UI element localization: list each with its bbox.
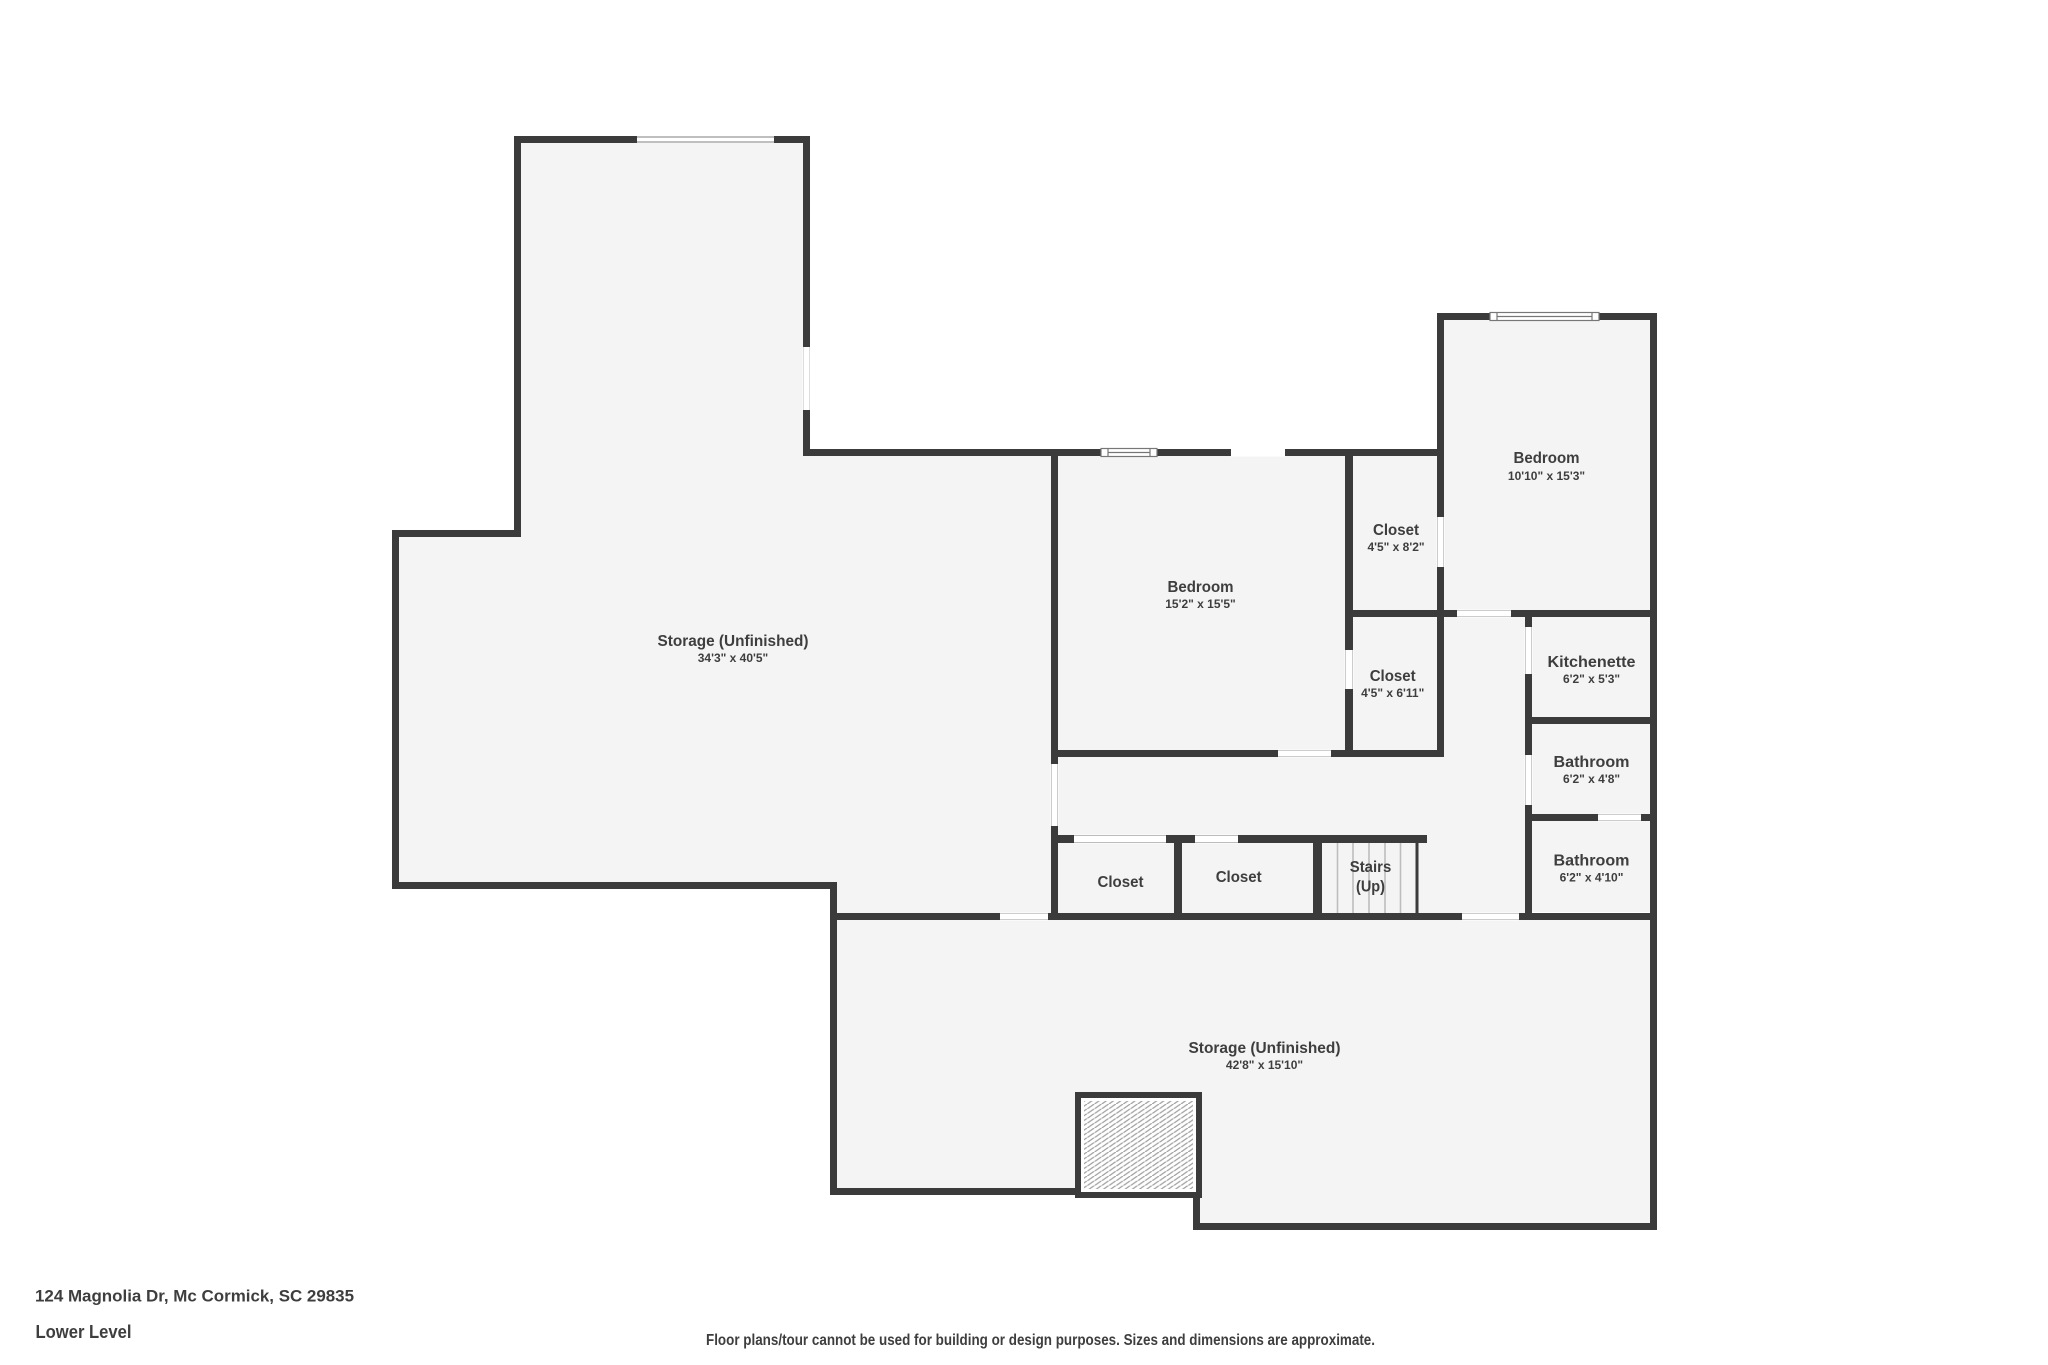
svg-text:4'5" x 8'2": 4'5" x 8'2" xyxy=(1367,540,1424,554)
svg-text:Closet: Closet xyxy=(1216,869,1263,886)
svg-text:Bedroom: Bedroom xyxy=(1514,450,1580,467)
svg-text:Closet: Closet xyxy=(1370,668,1417,685)
svg-text:4'5" x 6'11": 4'5" x 6'11" xyxy=(1361,686,1424,700)
svg-text:Lower Level: Lower Level xyxy=(36,1322,132,1342)
svg-text:10'10" x 15'3": 10'10" x 15'3" xyxy=(1508,469,1585,483)
svg-text:Bathroom: Bathroom xyxy=(1554,754,1630,771)
svg-text:Bathroom: Bathroom xyxy=(1554,853,1630,870)
svg-text:Stairs: Stairs xyxy=(1350,859,1392,876)
svg-text:(Up): (Up) xyxy=(1356,879,1385,896)
svg-text:Closet: Closet xyxy=(1098,874,1145,891)
svg-text:124 Magnolia Dr, Mc Cormick, S: 124 Magnolia Dr, Mc Cormick, SC 29835 xyxy=(35,1287,354,1306)
svg-text:Kitchenette: Kitchenette xyxy=(1548,654,1636,671)
svg-text:Floor plans/tour cannot be use: Floor plans/tour cannot be used for buil… xyxy=(706,1332,1375,1349)
svg-text:Storage (Unfinished): Storage (Unfinished) xyxy=(1189,1040,1341,1057)
svg-text:6'2" x 4'10": 6'2" x 4'10" xyxy=(1560,871,1624,885)
svg-text:6'2" x 5'3": 6'2" x 5'3" xyxy=(1563,672,1620,686)
svg-text:15'2" x 15'5": 15'2" x 15'5" xyxy=(1165,597,1235,611)
svg-text:Closet: Closet xyxy=(1373,522,1420,539)
svg-text:34'3" x 40'5": 34'3" x 40'5" xyxy=(698,651,768,665)
svg-text:Storage (Unfinished): Storage (Unfinished) xyxy=(658,633,809,650)
svg-text:Bedroom: Bedroom xyxy=(1168,579,1234,596)
svg-text:6'2" x 4'8": 6'2" x 4'8" xyxy=(1563,772,1620,786)
svg-text:42'8" x 15'10": 42'8" x 15'10" xyxy=(1226,1058,1303,1072)
